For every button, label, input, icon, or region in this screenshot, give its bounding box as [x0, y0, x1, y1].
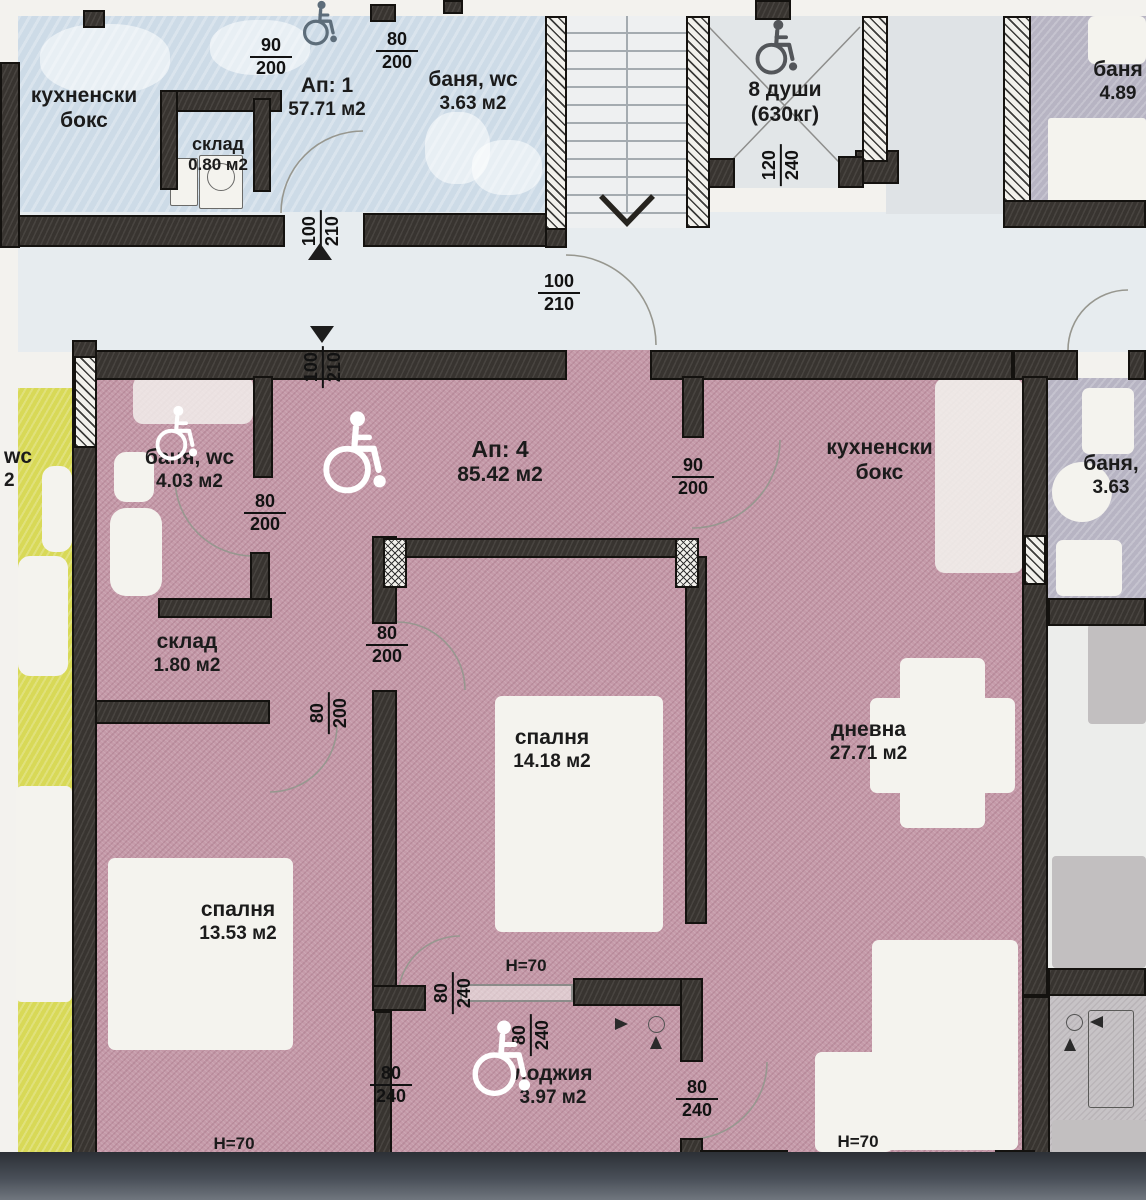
- dim-den: 210: [323, 216, 342, 246]
- dim-num: 80: [381, 1064, 401, 1083]
- wall: [95, 700, 270, 724]
- kitchen-counter-silhouette: [1088, 624, 1146, 724]
- left-arrow-icon: [1090, 1016, 1103, 1028]
- room-label-kitchen-upper: кухненски бокс: [14, 84, 154, 134]
- shaft-wall-hatched: [686, 16, 710, 228]
- room-label-wc-partial: wc 2: [4, 445, 48, 492]
- parapet-height: H=70: [505, 956, 546, 975]
- elevator-weight: (630кг): [726, 103, 844, 128]
- dim-den: 200: [372, 647, 402, 666]
- dim-den: 200: [331, 698, 350, 728]
- up-arrow-icon: [650, 1036, 662, 1049]
- bath-fixture: [1082, 388, 1134, 454]
- dim-num: 120: [760, 150, 779, 180]
- room-label-bath-upper: баня, wc 3.63 м2: [408, 68, 538, 115]
- dim-num: 100: [300, 216, 319, 246]
- room-area: 3.63 м2: [408, 93, 538, 115]
- room-area: 4.03 м2: [122, 471, 257, 493]
- dim-den: 210: [325, 352, 344, 382]
- wheelchair-icon: [312, 408, 390, 496]
- marker-circle-icon: [1066, 1014, 1083, 1031]
- apartment-title: Ап: 4: [471, 436, 528, 462]
- low-parapet-h70: [460, 984, 573, 1002]
- room-label-bath-right: баня, 3.63: [1075, 452, 1146, 499]
- dim-door-90-200: 90200: [246, 36, 296, 78]
- wall: [363, 213, 547, 247]
- dim-den: 200: [678, 479, 708, 498]
- room-area: 0.80 м2: [168, 155, 268, 175]
- room-area: 2: [4, 470, 48, 492]
- room-name: склад: [192, 134, 244, 154]
- dim-num: 90: [683, 456, 703, 475]
- dim-num: 80: [432, 983, 451, 1003]
- dim-den: 240: [682, 1101, 712, 1120]
- wall: [838, 156, 864, 188]
- room-area: 27.71 м2: [806, 743, 931, 765]
- room-name: кухненски бокс: [31, 84, 137, 132]
- wall: [755, 0, 791, 20]
- bottom-facade-band: [0, 1152, 1146, 1200]
- column-hatched: [1024, 535, 1046, 585]
- room-name: кухненски бокс: [826, 436, 932, 484]
- wall: [1128, 350, 1146, 380]
- apartment-area: 57.71 м2: [272, 99, 382, 121]
- dim-door-80-200: 80200: [240, 492, 290, 534]
- wall: [1022, 996, 1050, 1168]
- room-name: баня,: [1083, 452, 1138, 475]
- dim-den: 200: [382, 53, 412, 72]
- wheelchair-icon: [148, 404, 200, 462]
- dim-den: 210: [544, 295, 574, 314]
- room-name: спалня: [201, 898, 275, 921]
- room-label-storage-upper: склад 0.80 м2: [168, 134, 268, 175]
- dim-den: 240: [455, 978, 474, 1008]
- dim-door-100-210: 100210: [534, 272, 584, 314]
- floor-highlight: [472, 140, 542, 195]
- room-area: 14.18 м2: [492, 751, 612, 773]
- wall: [372, 985, 426, 1011]
- dim-elevator-120-240: 120240: [760, 140, 802, 190]
- shaft-wall-hatched: [1003, 16, 1031, 202]
- up-arrow-icon: [1064, 1038, 1076, 1051]
- room-label-bath-upper-right: баня 4.89: [1078, 58, 1146, 105]
- toilet-icon: [110, 508, 162, 596]
- wheelchair-icon: [748, 18, 800, 76]
- dim-door-90-200: 90200: [668, 456, 718, 498]
- parapet-height-label: H=70: [496, 956, 556, 976]
- dim-den: 240: [376, 1087, 406, 1106]
- elevator-label: 8 души (630кг): [726, 78, 844, 128]
- room-label-bedroom2: спалня 13.53 м2: [178, 898, 298, 945]
- wall: [680, 978, 703, 1062]
- elevator-lobby-floor: [886, 16, 1005, 214]
- dim-door-80-200: 80200: [308, 688, 350, 738]
- dim-num: 80: [308, 703, 327, 723]
- wall: [443, 0, 463, 14]
- column-hatched: [675, 538, 699, 588]
- parapet-height: H=70: [837, 1132, 878, 1151]
- dim-door-80-240: 80240: [432, 968, 474, 1018]
- wall: [685, 556, 707, 924]
- apartment-title: Ап: 1: [301, 74, 353, 97]
- room-area: 13.53 м2: [178, 923, 298, 945]
- parapet-height-label: H=70: [204, 1134, 264, 1154]
- dim-num: 100: [544, 272, 574, 291]
- bath-fixture: [1088, 16, 1146, 64]
- wall: [1048, 598, 1146, 626]
- room-name: баня, wc: [428, 68, 517, 91]
- room-label-bedroom1: спалня 14.18 м2: [492, 726, 612, 773]
- floor-highlight: [935, 378, 1023, 573]
- parapet-height: H=70: [213, 1134, 254, 1153]
- wheelchair-icon: [462, 1016, 534, 1100]
- bath-fixture: [18, 556, 68, 676]
- apartment-area: 85.42 м2: [440, 463, 560, 488]
- wall: [83, 10, 105, 28]
- wall: [545, 228, 567, 248]
- right-arrow-icon: [615, 1018, 628, 1030]
- bed-silhouette: [16, 786, 72, 1002]
- wall: [682, 376, 704, 438]
- dim-num: 80: [687, 1078, 707, 1097]
- wall: [1003, 200, 1146, 228]
- marker-circle-icon: [648, 1016, 665, 1033]
- dim-door-80-240: 80240: [672, 1078, 722, 1120]
- wall: [72, 340, 97, 1158]
- dim-num: 80: [377, 624, 397, 643]
- room-label-storage-ap4: склад 1.80 м2: [132, 630, 242, 677]
- dim-door-100-210: 100210: [302, 342, 344, 392]
- wall: [573, 978, 685, 1006]
- room-name: склад: [157, 630, 218, 653]
- parapet-height-label: H=70: [828, 1132, 888, 1152]
- dim-num: 80: [255, 492, 275, 511]
- wall: [158, 598, 272, 618]
- column-hatched: [74, 356, 97, 448]
- wall: [18, 215, 285, 247]
- wall: [650, 350, 1013, 380]
- dim-num: 90: [261, 36, 281, 55]
- room-name: wc: [4, 445, 32, 468]
- column-hatched: [383, 538, 407, 588]
- dim-door-80-200: 80200: [372, 30, 422, 72]
- room-label-living: дневна 27.71 м2: [806, 718, 931, 765]
- room-label-ap1: Ап: 1 57.71 м2: [272, 74, 382, 121]
- bed-silhouette: [108, 858, 293, 1050]
- bath-fixture: [1056, 540, 1122, 596]
- dim-den: 240: [533, 1020, 552, 1050]
- wheelchair-icon: [296, 0, 340, 46]
- room-label-ap4: Ап: 4 85.42 м2: [440, 436, 560, 488]
- room-area: 4.89: [1078, 83, 1146, 105]
- room-label-kitchen-ap4: кухненски бокс: [812, 436, 947, 486]
- entry-direction-down-arrow-icon: [310, 326, 334, 343]
- elevator-capacity: 8 души: [748, 78, 821, 101]
- dim-den: 200: [256, 59, 286, 78]
- room-name: баня: [1093, 58, 1143, 81]
- wall: [1048, 968, 1146, 996]
- wall: [1022, 376, 1048, 996]
- wall: [370, 4, 396, 22]
- kitchen-counter-silhouette: [1052, 856, 1146, 968]
- dim-door-80-200: 80200: [362, 624, 412, 666]
- sofa-silhouette: [872, 940, 1018, 1150]
- shaft-wall-hatched: [545, 16, 567, 230]
- room-name: спалня: [515, 726, 589, 749]
- wall: [405, 538, 677, 558]
- dim-door-80-240: 80240: [366, 1064, 416, 1106]
- dim-den: 200: [250, 515, 280, 534]
- room-name: дневна: [831, 718, 906, 741]
- bath-fixture: [1048, 118, 1146, 206]
- room-area: 3.63: [1075, 477, 1146, 499]
- dim-num: 100: [302, 352, 321, 382]
- floor-plan: кухненски бокс Ап: 1 57.71 м2 склад 0.80…: [0, 0, 1146, 1200]
- wall: [372, 690, 397, 987]
- room-area: 1.80 м2: [132, 655, 242, 677]
- dim-den: 240: [783, 150, 802, 180]
- wall: [707, 158, 735, 188]
- entry-direction-up-arrow-icon: [308, 243, 332, 260]
- dim-num: 80: [387, 30, 407, 49]
- staircase-divider: [626, 16, 628, 214]
- shaft-wall-hatched: [862, 16, 888, 162]
